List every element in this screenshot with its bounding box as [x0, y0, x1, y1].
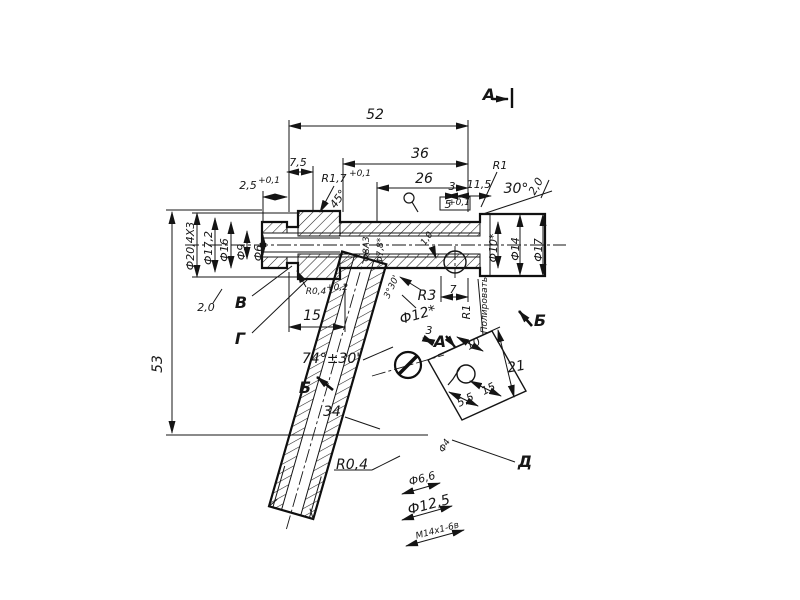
- dim-f14: Ф14: [509, 237, 522, 260]
- dim-15-detail: 15: [479, 380, 497, 398]
- dim-f10: Ф10*: [487, 233, 500, 262]
- dim-r0-4-groove-tol: +0,2: [326, 283, 348, 293]
- dim-f16: Ф16: [218, 238, 231, 261]
- chamfer-2-0-left: 2,0: [197, 301, 215, 314]
- angle-30: 30°: [504, 181, 529, 197]
- flange-bottom-wall: [298, 254, 340, 279]
- dim-r1-7-tol: +0,1: [349, 169, 371, 179]
- dim-3-top: 3: [449, 180, 456, 193]
- detail-hole: [457, 365, 475, 383]
- dim-52: 52: [366, 107, 384, 123]
- dim-f6: Ф6: [252, 245, 265, 261]
- view-b-side-label: Б: [534, 311, 546, 330]
- dim-r3: R3: [418, 288, 437, 304]
- dim-26: 26: [415, 171, 433, 187]
- dim-5-tol: +0,1: [448, 198, 470, 208]
- note-polish: Полировать: [480, 277, 490, 333]
- section-a-detail-label: А: [432, 332, 446, 351]
- dim-7-5: 7,5: [289, 156, 307, 169]
- dim-r1-side: R1: [460, 305, 473, 320]
- dim-2-5-tol: +0,1: [258, 176, 280, 186]
- dim-f9: Ф9: [235, 244, 248, 260]
- angle-3-30: 3°30': [383, 274, 402, 300]
- view-b-main-arrow: [317, 377, 333, 390]
- dim-f17-2: Ф17,2: [202, 231, 215, 265]
- dim-21: 21: [506, 358, 526, 377]
- dim-f8a3: Ф8А3: [362, 236, 372, 262]
- dim-11-5: 11,5: [467, 178, 492, 191]
- dim-f7-8: Ф7,8*: [376, 237, 386, 264]
- view-d-label: Д: [517, 452, 532, 471]
- view-b-side-arrow: [519, 311, 532, 326]
- dim-f12-5: Ф12,5: [406, 492, 452, 519]
- dim-r1-7: R1,7: [321, 172, 346, 185]
- left-cap-bottom-wall: [262, 257, 287, 268]
- leader-34: [345, 417, 380, 429]
- chamfer-45: 45°: [327, 187, 349, 210]
- dim-r0-4-groove: R0,4: [306, 287, 327, 297]
- polish-symbol-icon: [404, 193, 414, 203]
- dim-r1-top: R1: [493, 159, 508, 172]
- dim-r0-4: R0,4: [336, 457, 368, 473]
- dim-53: 53: [150, 355, 166, 373]
- leader-f12: [402, 295, 416, 308]
- plug-slot: [399, 356, 417, 374]
- dim-34: 34: [323, 404, 341, 420]
- section-a-detail-arrow: [446, 336, 455, 347]
- dim-5-5: 5,5: [455, 390, 476, 410]
- dim-line-3-detail: [423, 338, 434, 343]
- dim-36: 36: [411, 146, 429, 162]
- view-g-label: Г: [235, 329, 246, 348]
- dim-f20-4: Ф20,4Х3: [184, 222, 197, 271]
- dim-7-under-head: 7: [450, 283, 457, 296]
- dim-f17: Ф17: [532, 238, 545, 261]
- section-a-top-label: А: [481, 85, 495, 104]
- flange-top-wall: [298, 211, 340, 236]
- dim-thread: М14х1-6в: [415, 520, 461, 541]
- leader-g: [252, 279, 308, 333]
- view-b-main-label: Б: [299, 378, 311, 397]
- dim-3-detail: 3: [426, 324, 433, 337]
- left-cap-top-wall: [262, 222, 287, 233]
- leader-d: [452, 440, 515, 462]
- dim-10: 10: [464, 335, 482, 353]
- engineering-drawing-sheet: А 52 36 26 7,5 2,5 +0,1 R1,7 +0,1 45° 3 …: [0, 0, 800, 600]
- dim-2-5: 2,5: [239, 179, 257, 192]
- roughness-icon: [448, 368, 460, 385]
- slotted-plug: [372, 352, 444, 378]
- dim-f4: Ф4: [438, 437, 454, 454]
- leader-r0-4: [372, 456, 400, 470]
- leader-v: [252, 266, 292, 296]
- view-v-label: В: [235, 293, 247, 312]
- body-top-wall: [340, 222, 480, 236]
- dim-15-left: 15: [303, 308, 321, 324]
- engineering-drawing: А 52 36 26 7,5 2,5 +0,1 R1,7 +0,1 45° 3 …: [0, 0, 800, 600]
- polish-symbol-tail: [412, 202, 418, 212]
- angle-74: 74°±30': [302, 351, 360, 367]
- leader-74: [363, 347, 393, 360]
